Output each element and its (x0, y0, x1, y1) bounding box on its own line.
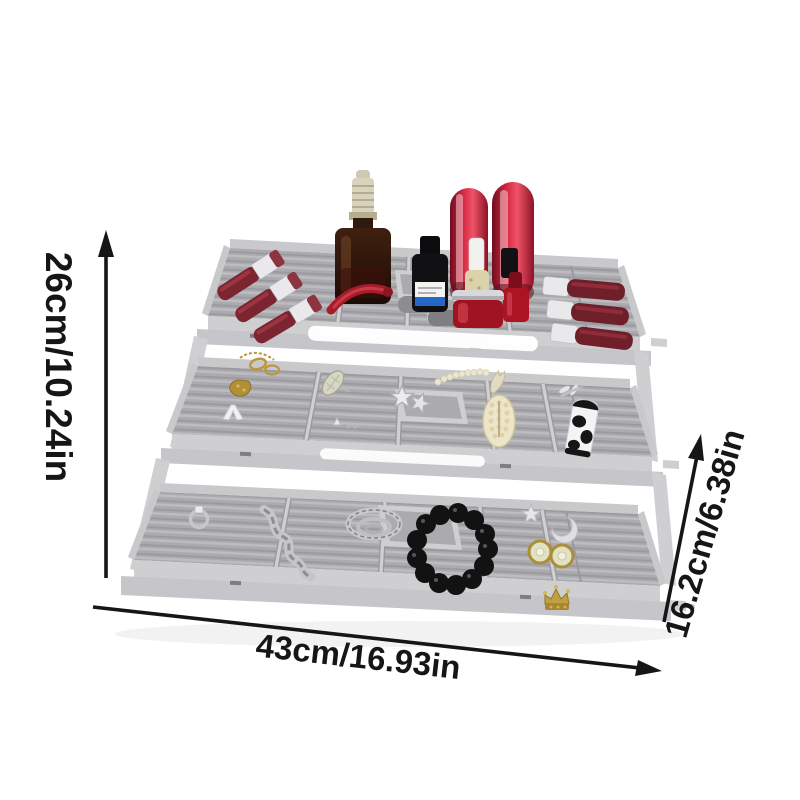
product-illustration: 26cm/10.24in 43cm/16.93in 16.2cm/6.38in (0, 0, 800, 800)
width-arrow-right-icon (635, 660, 662, 676)
height-arrow-up-icon (98, 230, 114, 257)
width-dimension: 43cm/16.93in (93, 607, 662, 686)
depth-arrow-up-right-icon (688, 434, 704, 461)
pearl-hair-clip (483, 395, 515, 447)
lipsticks-right (542, 276, 633, 350)
gold-nugget (230, 380, 251, 396)
height-dimension: 26cm/10.24in (38, 230, 114, 578)
tier-bottom (121, 483, 695, 621)
height-dimension-label: 26cm/10.24in (38, 252, 79, 482)
dropper-bottle-black (412, 236, 448, 312)
tier-middle (161, 357, 679, 487)
jar-red (452, 290, 504, 328)
product-dimension-image: 26cm/10.24in 43cm/16.93in 16.2cm/6.38in (0, 0, 800, 800)
dropper-bottle-amber (335, 170, 391, 304)
